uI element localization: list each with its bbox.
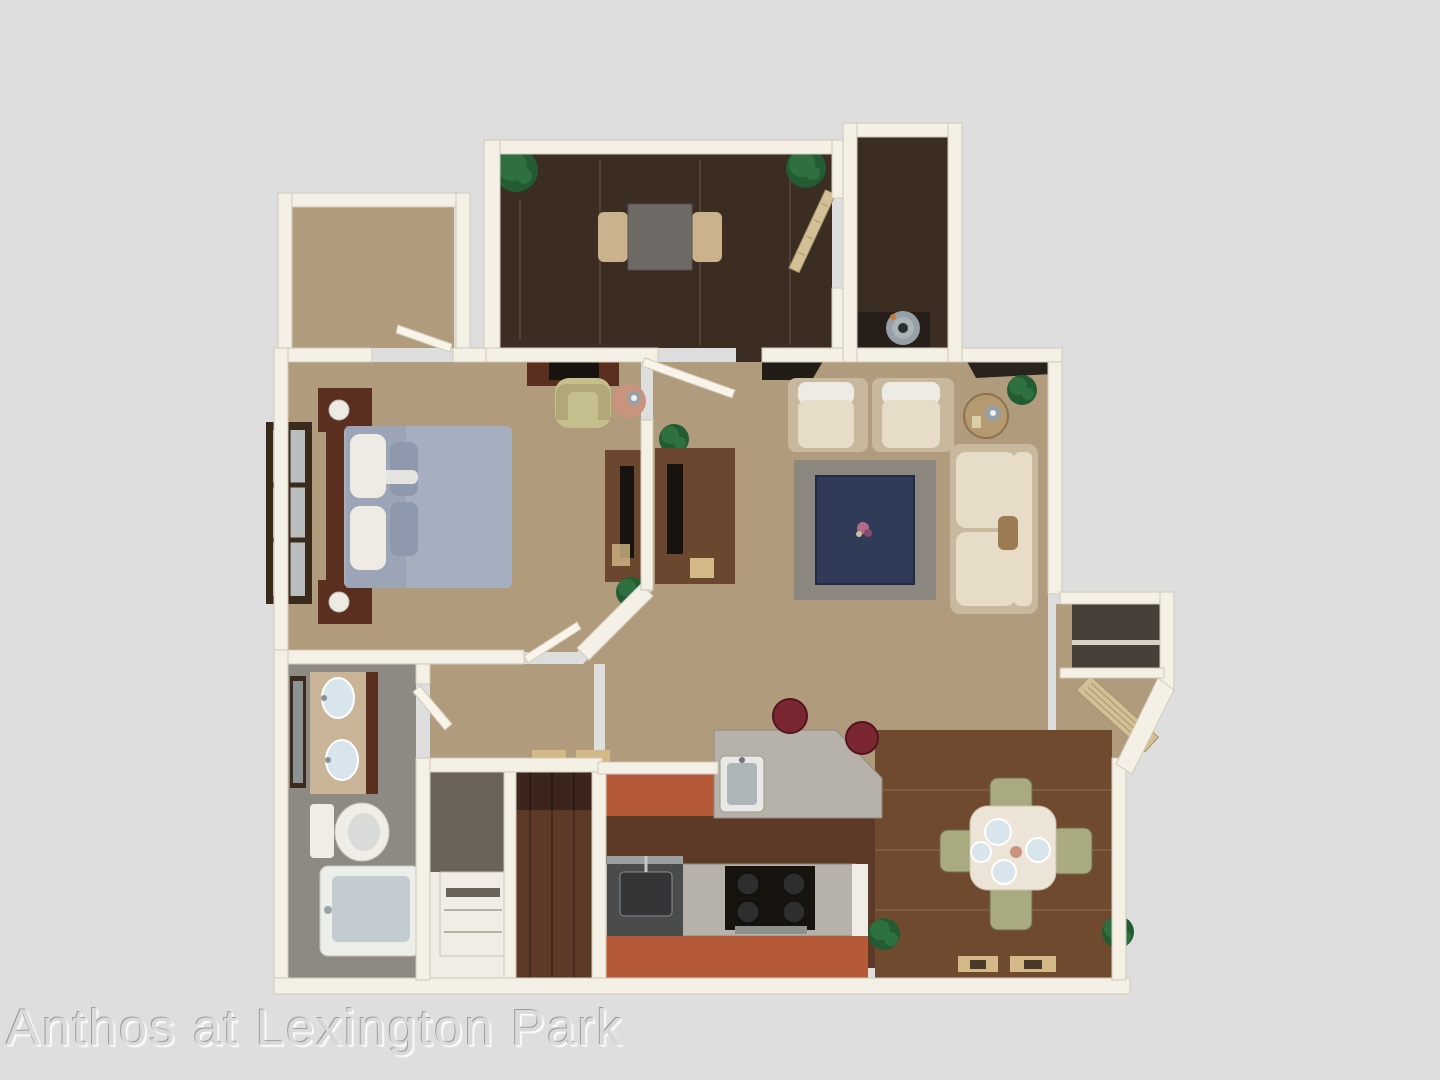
floor-plan-rendering — [0, 0, 1440, 1080]
sofa-throw-pillow — [998, 516, 1018, 550]
wall-bath-right-lower — [416, 758, 430, 980]
plate-4 — [971, 842, 991, 862]
water-heater — [886, 311, 920, 345]
study-basket — [690, 558, 714, 578]
dining-plant-left — [868, 918, 900, 950]
coffee-table — [816, 476, 914, 584]
wall-closet-left — [278, 193, 292, 357]
toilet — [310, 803, 389, 861]
den-table — [628, 204, 692, 270]
floor-mat-1 — [958, 956, 998, 972]
wall-den-bottom — [484, 348, 658, 362]
den-chair-right — [692, 212, 722, 262]
kitchen-sink-unit — [607, 856, 683, 940]
wall-study-divider — [641, 420, 653, 590]
pillow-2 — [350, 506, 386, 570]
wall-bottom-outer — [274, 978, 1130, 994]
wall-entry-shelf-front — [1060, 668, 1164, 678]
closet-hall-floor — [430, 664, 594, 760]
bedroom-tv — [549, 362, 599, 380]
room-laundry-closet — [440, 872, 506, 956]
den-passage-floor — [736, 348, 764, 364]
armchair-1 — [788, 378, 868, 452]
entry-closet-interior — [1072, 604, 1160, 668]
wall-bedroom-top-right — [453, 348, 486, 362]
bathtub — [320, 866, 420, 956]
room-living-room — [762, 356, 1052, 614]
walk-in-closet-floor — [292, 207, 454, 348]
den-plant-left — [494, 148, 538, 192]
bathroom-vanity — [310, 672, 378, 794]
wall-closet-right — [456, 193, 470, 357]
lamp-bottom — [329, 592, 349, 612]
wall-utility-top — [843, 123, 962, 137]
kitchen-upper-cabinets — [605, 772, 715, 816]
wall-closet-top — [278, 193, 468, 207]
living-plant — [1007, 375, 1037, 405]
pillow-4 — [390, 502, 418, 556]
dining-table — [970, 806, 1056, 890]
centerpiece — [1010, 846, 1022, 858]
plate-3 — [992, 860, 1016, 884]
room-utility-closet — [856, 311, 930, 350]
counter-end-panel — [852, 864, 868, 940]
bar-stool-2 — [846, 722, 878, 754]
den-chair-left — [598, 212, 628, 262]
bed — [344, 426, 512, 588]
linen-dresser — [440, 872, 506, 956]
wall-bath-right-upper — [416, 664, 430, 684]
living-side-table — [964, 394, 1008, 438]
entry-closet-shelf — [1072, 640, 1160, 645]
dining-chair-right — [1052, 828, 1092, 874]
wall-utility-right — [948, 123, 962, 362]
study-monitor — [667, 464, 683, 554]
laundry-closet-shadow — [430, 772, 506, 872]
wall-bedroom-top-left — [274, 348, 372, 362]
lamp-top — [329, 400, 349, 420]
wall-kitchen-top — [598, 762, 718, 774]
wall-den-left — [484, 140, 500, 362]
bedroom-side-table — [612, 384, 646, 418]
bedroom-window — [266, 422, 312, 604]
wall-living-top — [762, 348, 1062, 362]
watermark-text: Anthos at Lexington Park — [6, 998, 906, 1057]
pillow-1 — [350, 434, 386, 498]
bed-headboard — [326, 430, 346, 582]
stove-controls — [735, 926, 807, 934]
bedroom-armchair — [555, 378, 611, 428]
floor-mat-2 — [1010, 956, 1056, 972]
bedroom-desk-tray — [612, 544, 630, 566]
wall-entry-top — [1060, 592, 1174, 604]
bar-stool-1 — [773, 699, 807, 733]
stove — [725, 866, 815, 934]
plate-2 — [1026, 838, 1050, 862]
wall-bedroom-bottom — [274, 650, 524, 664]
sofa — [950, 444, 1038, 614]
wall-closet-mid — [430, 758, 602, 772]
kitchen-lower-cabinets — [605, 936, 868, 978]
wall-den-top — [484, 140, 846, 154]
bar-sink — [720, 756, 764, 812]
plate-1 — [985, 819, 1011, 845]
wall-living-right — [1048, 362, 1062, 594]
wall-left-lower — [274, 650, 288, 994]
wall-left-outer — [274, 348, 288, 664]
wall-dining-right — [1112, 758, 1126, 980]
wall-utility-left — [843, 123, 857, 362]
wall-kitchen-left — [592, 772, 606, 978]
wall-laundry-divider — [504, 772, 516, 978]
pillow-3 — [390, 442, 418, 496]
armchair-2 — [872, 378, 954, 452]
